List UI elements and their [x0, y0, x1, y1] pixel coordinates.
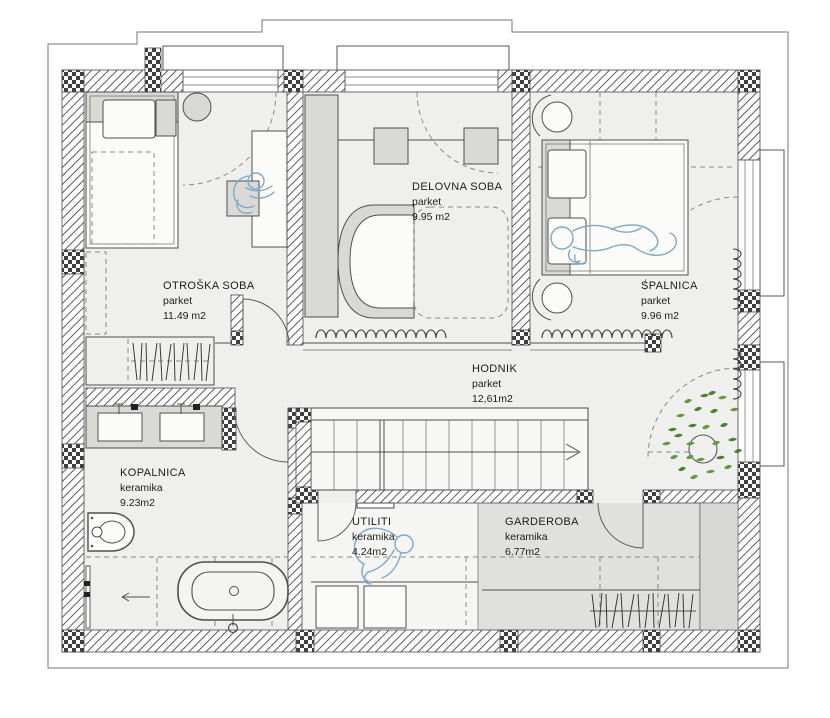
closet-symbol: [700, 503, 738, 630]
pier: [62, 630, 84, 652]
pier: [62, 444, 84, 468]
pier: [512, 70, 530, 92]
sink-symbol: [98, 413, 142, 441]
tap-icon: [131, 404, 138, 410]
room-name: DELOVNA SOBA: [412, 181, 503, 193]
wall-hodnik-south-1: [356, 490, 577, 503]
wall-right-2: [738, 312, 760, 345]
room-name: HODNIK: [472, 363, 517, 375]
room-area: 9.96 m2: [641, 310, 679, 322]
pier: [296, 408, 311, 422]
room-area: 4.24m2: [352, 546, 387, 558]
wall-left: [62, 92, 84, 630]
shower-control-icon: [84, 592, 90, 597]
room-floor: keramika: [505, 531, 548, 543]
toilet-symbol: [88, 513, 134, 551]
nightstand-symbol: [542, 102, 572, 132]
pier: [645, 334, 661, 352]
pier: [296, 487, 311, 503]
chair-symbol: [464, 128, 498, 164]
bed-symbol: [86, 92, 178, 248]
pier: [643, 630, 660, 652]
pier: [738, 462, 760, 498]
nightstand-symbol: [542, 283, 572, 313]
wall-stub: [231, 295, 243, 331]
wall-partition-delovna-spalnica: [512, 92, 530, 345]
wall-stairwell-west: [296, 422, 311, 487]
wall-hodnik-south-2: [660, 490, 738, 503]
chair-symbol: [227, 181, 259, 216]
pier: [738, 345, 760, 370]
pier: [577, 490, 593, 503]
pier: [284, 70, 303, 92]
tap-icon: [193, 404, 200, 410]
room-floor: keramika: [352, 531, 395, 543]
pier: [738, 70, 760, 92]
stool-symbol: [183, 93, 211, 121]
room-floor: parket: [641, 295, 670, 307]
pier: [145, 48, 161, 92]
room-name: GARDEROBA: [505, 516, 579, 528]
pier: [62, 70, 84, 92]
stairs-symbol: [311, 408, 588, 490]
wall-bath-north: [86, 388, 235, 408]
wardrobe-symbol: [86, 337, 214, 385]
dryer-symbol: [364, 586, 406, 628]
bed-symbol: [542, 140, 688, 275]
shower-control-icon: [84, 581, 90, 586]
pier: [296, 630, 314, 652]
wall-right-3: [738, 498, 760, 630]
sofa-symbol: [338, 205, 414, 318]
room-area: 6.77m2: [505, 546, 540, 558]
wall-right-1: [738, 92, 760, 160]
washer-symbol: [316, 586, 358, 628]
room-area: 9.95 m2: [412, 211, 450, 223]
room-floor: keramika: [120, 482, 163, 494]
pier: [643, 490, 660, 503]
wall-bath-east-2: [288, 514, 302, 630]
room-area: 9.23m2: [120, 497, 155, 509]
wall-partition-otroska-delovna: [287, 92, 303, 345]
room-area: 11.49 m2: [163, 310, 206, 322]
cabinet-symbol: [305, 95, 338, 317]
sink-symbol: [160, 413, 204, 441]
pier: [62, 250, 84, 274]
room-name: UTILITI: [352, 516, 391, 528]
pier: [738, 630, 760, 652]
door-threshold: [357, 503, 394, 508]
room-floor: parket: [412, 196, 441, 208]
pier: [512, 330, 530, 345]
room-name: OTROŠKA SOBA: [163, 279, 255, 292]
wall-top-3: [498, 70, 738, 92]
room-floor: parket: [163, 295, 192, 307]
room-name: KOPALNICA: [120, 467, 186, 479]
room-area: 12,61m2: [472, 393, 513, 405]
room-name: SPALNICA: [641, 280, 698, 292]
vanity-symbol: [86, 404, 222, 448]
pier: [231, 331, 243, 345]
floor-plan: OTROŠKA SOBA parket 11.49 m2 DELOVNA SOB…: [0, 0, 830, 718]
chair-symbol: [374, 128, 408, 164]
pier: [500, 630, 518, 652]
room-floor: parket: [472, 378, 501, 390]
